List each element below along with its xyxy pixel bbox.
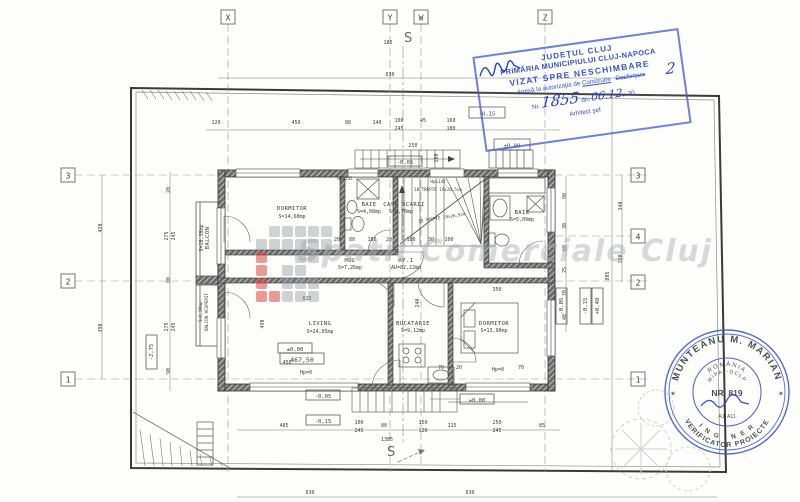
stairs-flight1-note: 18 TREPTE 19x26,5cm <box>414 187 462 192</box>
dim-label: 120 <box>211 120 220 126</box>
stamp-date-value: 06.12. <box>591 86 626 104</box>
dim-label: 85 <box>539 423 545 429</box>
dim-label: 70 <box>562 290 568 296</box>
grid-label-x: X <box>226 14 231 23</box>
room-casa-scarii-area: S=8,70mp <box>389 209 413 215</box>
room-dormitor2: DORMITOR <box>479 321 509 327</box>
level-bottom-zero: ±0,00 <box>469 398 486 404</box>
dim-label: Hp=0 <box>300 370 312 376</box>
level-top-minus005: -0,05 <box>397 160 414 166</box>
level-living-abs: 467,50 <box>290 356 314 364</box>
level-left-basement: -2,75 <box>149 344 155 361</box>
dim-label: 805 <box>605 271 611 280</box>
grid-label-y: Y <box>388 14 393 23</box>
dim-label: 275 <box>164 322 170 331</box>
grid-label-l3: 3 <box>66 172 71 181</box>
dim-label: 20 <box>456 365 462 371</box>
grid-label-r4: 4 <box>636 233 641 242</box>
dim-label: 180 <box>367 237 376 243</box>
stamp-din-label: din <box>581 96 590 104</box>
grid-label-r1: 1 <box>636 376 641 385</box>
level-living: ±0,00 <box>287 347 304 353</box>
dim-label: 245 <box>171 231 177 240</box>
dim-label: 90 <box>166 368 172 374</box>
dim-label: 40 <box>562 314 568 320</box>
dim-label: 340 <box>618 201 624 210</box>
room-balcon-acoperit-area: S=6,30mp <box>198 301 203 322</box>
dim-label: 390 <box>98 323 104 332</box>
dim-label: 70 <box>518 365 524 371</box>
room-hol-area: S=7,26mp <box>338 265 362 271</box>
dim-label: 150 <box>418 420 427 426</box>
room-bucatarie: BUCATARIE <box>396 321 430 327</box>
stamp-nr-label: Nr. <box>532 103 541 111</box>
dim-label: 100 <box>394 118 403 124</box>
dim-label: 20 <box>386 237 392 243</box>
dim-label: 180 <box>446 126 455 132</box>
dim-label: 245 <box>492 428 501 434</box>
stamp-signer-label: Arhitect şef <box>569 107 601 118</box>
stamp-handwritten-2: 2 <box>666 59 677 79</box>
dim-label: 630 <box>385 72 394 78</box>
grid-label-z: Z <box>543 14 548 23</box>
room-ap1: AP.1 <box>398 258 413 264</box>
dim-label: 30 <box>562 223 568 229</box>
round-stamp-category: A1, A11 <box>718 414 735 420</box>
round-stamp-nr: NR. 819 <box>711 388 742 398</box>
section-mark-bottom: S <box>387 445 395 460</box>
room-bucatarie-area: S=9,12mp <box>401 328 425 334</box>
dim-label: 180 <box>406 237 415 243</box>
dim-label: 250 <box>408 143 417 149</box>
dim-label: 90 <box>562 193 568 199</box>
dim-label: 160 <box>446 118 455 124</box>
dim-label: 420 <box>98 223 104 232</box>
room-balcon: BALCON <box>205 227 211 250</box>
dim-label: 140 <box>372 120 381 126</box>
round-stamp-verificator: VERIFICATOR PROIECTE <box>683 418 771 449</box>
room-baie2: BAIE <box>514 210 529 216</box>
exterior-ladder <box>197 422 213 465</box>
dim-label: 80 <box>349 237 355 243</box>
dim-label: 630 <box>465 490 474 496</box>
dim-label: 245 <box>171 322 177 331</box>
level-right-a: -0,05 <box>559 298 565 315</box>
room-balcon-area: S=10,38mp <box>199 224 205 251</box>
dim-label: 60 <box>562 245 568 251</box>
room-dormitor2-area: S=13,90mp <box>480 328 507 334</box>
dim-label: 100 <box>444 237 453 243</box>
dim-label: 615 <box>302 296 311 302</box>
dim-label: 180 <box>434 153 440 162</box>
stamp-year-label: 20 <box>627 90 635 98</box>
dim-label: 120 <box>418 428 427 434</box>
dim-label: 450 <box>291 120 300 126</box>
level-bottom-minus015: -0,15 <box>315 419 332 425</box>
dim-label: 20 <box>334 237 340 243</box>
room-ap1-area: AU=82,22mp <box>391 265 421 271</box>
room-baie2-area: S=5,09mp <box>510 217 534 223</box>
dim-label: 350 <box>492 287 501 293</box>
dim-label: 115 <box>447 423 456 429</box>
room-dormitor1: DORMITOR <box>277 206 307 212</box>
room-dormitor1-area: S=14,60mp <box>278 214 305 220</box>
slope-hatch <box>133 412 230 468</box>
dim-label: 275 <box>164 231 170 240</box>
stamp-nr-value: 1855 <box>541 88 580 112</box>
room-baie1: BAIE <box>361 202 376 208</box>
dim-label: 450 <box>282 360 291 366</box>
stairs-flight2-note: 18 TREPTE 19x26,5cm <box>418 211 467 224</box>
edge-hatch-top <box>142 90 212 101</box>
section-mark-top: S <box>404 31 412 46</box>
dim-label: 1385 <box>381 437 393 443</box>
hp-parapet-note: Hp=145 <box>337 176 353 181</box>
stairs-hp-note: Hp=145 <box>430 179 446 184</box>
room-balcon-acoperit: BALCON ACOPERIT <box>204 293 209 331</box>
dim-label: 70 <box>438 365 444 371</box>
dim-label: 100 <box>354 420 363 426</box>
dim-label: 630 <box>305 490 314 496</box>
room-hol: HOL <box>344 258 356 264</box>
dim-label: 20 <box>166 187 172 193</box>
room-baie1-area: S=4,08mp <box>357 209 381 215</box>
room-living: LIVING <box>309 321 332 327</box>
dim-label: 245 <box>354 428 363 434</box>
round-stamp-star-left: ✶ <box>670 390 676 398</box>
grid-label-l1: 1 <box>66 376 71 385</box>
dim-label: 80 <box>381 423 387 429</box>
level-right-c: +0,40 <box>595 298 601 315</box>
level-right-b: -0,15 <box>583 298 589 315</box>
round-stamp-star-right: ✶ <box>778 390 784 398</box>
grid-label-r3: 3 <box>636 172 641 181</box>
room-casa-scarii: CASA SCARII <box>383 202 424 208</box>
grid-label-l2: 2 <box>66 278 71 287</box>
dim-label: 180 <box>618 254 624 263</box>
dim-label: 250 <box>492 420 501 426</box>
dim-label: 80 <box>166 277 172 283</box>
dim-label: 485 <box>279 423 288 429</box>
grid-label-w: W <box>419 14 424 23</box>
dimension-lines <box>102 78 717 497</box>
dim-label: 80 <box>345 120 351 126</box>
dim-label: 240 <box>415 298 421 307</box>
svg-text:VERIFICATOR PROIECTE: VERIFICATOR PROIECTE <box>683 418 771 449</box>
dim-label: 45 <box>420 118 426 124</box>
dim-label: 185 <box>383 40 392 46</box>
room-living-area: S=24,05mp <box>306 329 333 335</box>
dim-label: 25 <box>562 267 568 273</box>
dim-label: 30 <box>428 237 434 243</box>
engineer-round-stamp: MUNTEANU M. MARIAN VERIFICATOR PROIECTE … <box>661 326 793 458</box>
dim-label: 245 <box>394 126 403 132</box>
floorplan-sheet: X Y W Z 3 2 1 3 4 2 1 S S DORMITOR S=14,… <box>0 0 800 502</box>
dim-label: 490 <box>260 319 266 328</box>
level-bottom-minus005: -0,05 <box>315 394 332 400</box>
dim-label: Hp=0 <box>492 367 504 373</box>
grid-label-r2: 2 <box>636 279 641 288</box>
